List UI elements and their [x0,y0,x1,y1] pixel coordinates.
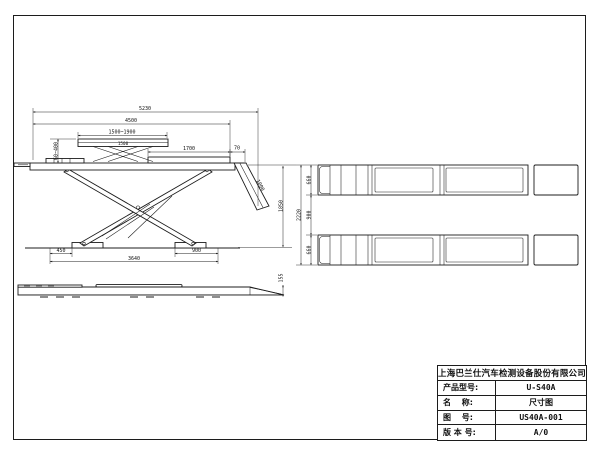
dim-overall-width: 2220 [297,209,303,221]
plan-runway-bottom [318,235,578,265]
field-value-model: U-S40A [496,381,586,395]
dim-track-gap: 900 [307,210,313,219]
dim-rear-flat: 1700 [183,146,195,152]
dim-aux-travel: 60~400 [54,142,60,160]
field-label-version: 版 本 号: [438,425,496,440]
dim-overall-length: 5230 [139,106,151,112]
plan-runway-top [318,165,578,195]
dim-ramp-top: 70 [234,146,240,152]
field-label-model: 产品型号: [438,381,496,395]
dim-platform-length: 4500 [125,118,137,124]
title-block: 上海巴兰仕汽车检测设备股份有限公司 产品型号: U-S40A 名 称: 尺寸图 … [437,365,587,441]
plan-view: 660 900 660 2220 [296,165,578,265]
dim-aux-range: 1500~1900 [108,130,135,136]
dimensions-plan: 660 900 660 2220 [296,165,317,265]
dim-min-height: 155 [279,273,285,282]
dim-runway-width-bottom: 660 [307,245,313,254]
title-row-name: 名 称: 尺寸图 [438,396,586,411]
dim-runway-width-top: 660 [307,175,313,184]
title-row-version: 版 本 号: A/0 [438,425,586,440]
field-value-name: 尺寸图 [496,396,586,410]
field-label-name: 名 称: [438,396,496,410]
field-value-version: A/0 [496,425,586,440]
dim-base-left: 450 [56,248,65,254]
dim-lift-height: 1850 [279,200,285,212]
title-row-model: 产品型号: U-S40A [438,381,586,396]
dim-base-length: 3640 [128,256,140,262]
drawing-sheet: 5230 4500 1500~1900 1500 1700 70 60~400 … [0,0,600,462]
title-row-drawing-no: 图 号: US40A-001 [438,411,586,426]
company-name: 上海巴兰仕汽车检测设备股份有限公司 [438,366,586,381]
field-label-drawing-no: 图 号: [438,411,496,425]
dim-base-right: 900 [192,248,201,254]
dim-aux-inner: 1500 [118,141,129,147]
side-view-lowered: 155 [18,273,285,297]
field-value-drawing-no: US40A-001 [496,411,586,425]
